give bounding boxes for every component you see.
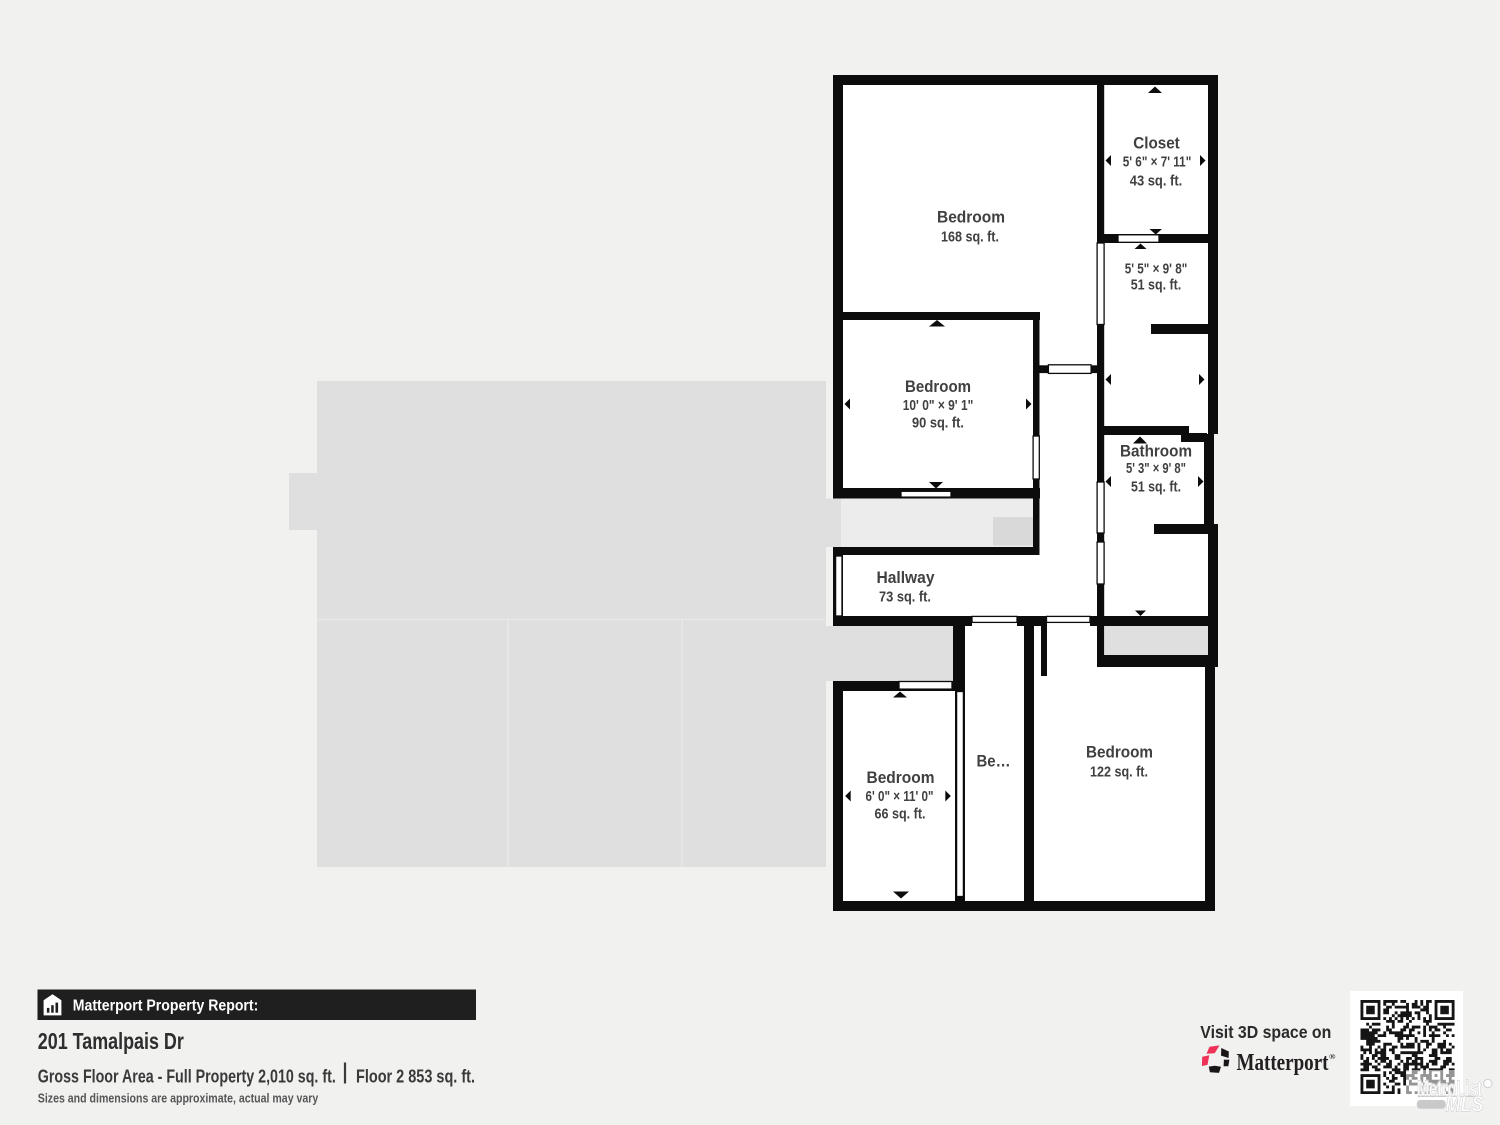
svg-text:Bedroom: Bedroom [937,208,1005,226]
svg-text:Closet: Closet [1133,134,1180,152]
svg-text:201 Tamalpais Dr: 201 Tamalpais Dr [38,1028,184,1054]
svg-text:5' 6" × 7' 11": 5' 6" × 7' 11" [1123,154,1192,171]
svg-text:Bedroom: Bedroom [867,769,935,787]
svg-text:Matterport Property Report:: Matterport Property Report: [73,998,258,1015]
svg-text:Bedroom: Bedroom [905,378,971,396]
svg-text:51 sq. ft.: 51 sq. ft. [1131,277,1182,294]
svg-text:6' 0" × 11' 0": 6' 0" × 11' 0" [866,788,934,805]
svg-text:Gross Floor Area - Full Proper: Gross Floor Area - Full Property 2,010 s… [38,1066,336,1086]
svg-text:Bathroom: Bathroom [1120,442,1192,460]
svg-text:MLS: MLS [1446,1092,1484,1117]
svg-text:Bedroom: Bedroom [1086,743,1153,761]
svg-text:168 sq. ft.: 168 sq. ft. [941,229,999,246]
svg-text:51 sq. ft.: 51 sq. ft. [1131,479,1181,496]
svg-text:73 sq. ft.: 73 sq. ft. [879,589,931,606]
svg-text:Hallway: Hallway [877,569,936,587]
svg-text:Be…: Be… [977,753,1011,771]
svg-text:®: ® [1329,1053,1336,1061]
svg-text:90 sq. ft.: 90 sq. ft. [912,415,964,432]
svg-text:122 sq. ft.: 122 sq. ft. [1090,764,1148,781]
svg-text:5' 5" × 9' 8": 5' 5" × 9' 8" [1125,261,1188,278]
svg-text:Visit 3D space on: Visit 3D space on [1200,1022,1331,1042]
svg-text:Matterport: Matterport [1237,1050,1329,1076]
svg-text:Sizes and dimensions are appro: Sizes and dimensions are approximate, ac… [38,1090,319,1105]
svg-text:43 sq. ft.: 43 sq. ft. [1130,173,1183,190]
svg-text:10' 0" × 9' 1": 10' 0" × 9' 1" [903,397,974,414]
svg-text:66 sq. ft.: 66 sq. ft. [875,806,926,823]
svg-text:Floor 2 853 sq. ft.: Floor 2 853 sq. ft. [356,1066,475,1086]
svg-text:5' 3" × 9' 8": 5' 3" × 9' 8" [1126,460,1186,477]
